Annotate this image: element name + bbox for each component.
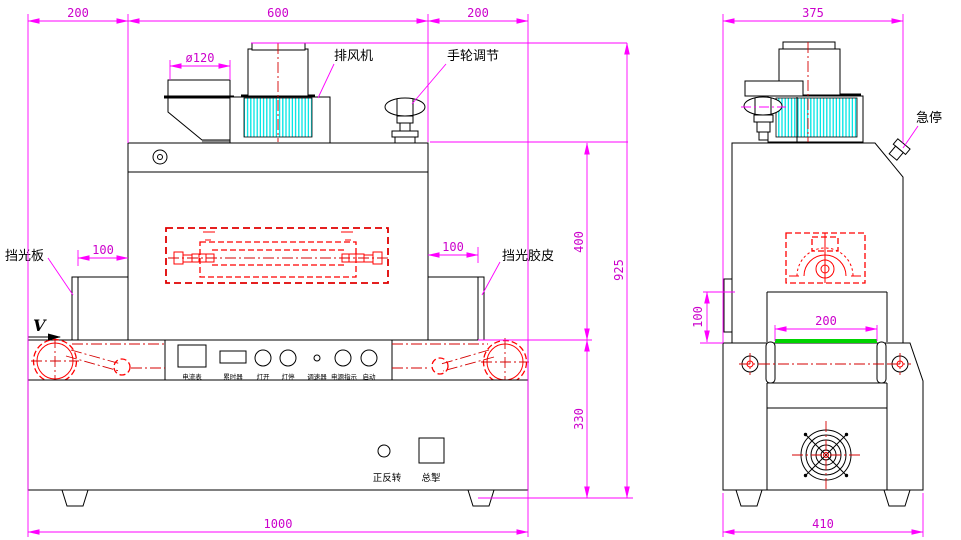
conveyor-belt-front xyxy=(28,337,529,386)
lamp-off-button[interactable] xyxy=(280,350,296,366)
foot xyxy=(884,490,910,506)
base-cabinet-front: 正反转 总掣 xyxy=(28,380,528,506)
hour-meter xyxy=(220,351,246,363)
dim-shield-inset-right: 100 xyxy=(442,240,464,254)
dim-duct-diameter: ø120 xyxy=(186,51,215,65)
lamp-on-button[interactable] xyxy=(255,350,271,366)
dim-belt-width: 200 xyxy=(815,314,837,328)
oven-body-side xyxy=(724,139,910,343)
dim-base-height: 330 xyxy=(572,408,586,430)
dim-base-depth: 410 xyxy=(812,517,834,531)
foot xyxy=(736,490,762,506)
dim-opening-height: 100 xyxy=(691,306,705,328)
exhaust-fan xyxy=(230,43,330,143)
dim-overhang-right: 200 xyxy=(467,6,489,20)
foot xyxy=(62,490,88,506)
power-indicator-lamp xyxy=(335,350,351,366)
dim-total-length: 1000 xyxy=(264,517,293,531)
dim-overhang-left: 200 xyxy=(67,6,89,20)
light-shield-left xyxy=(72,277,128,340)
exhaust-duct xyxy=(164,80,234,142)
dim-depth: 375 xyxy=(802,6,824,20)
start-button[interactable] xyxy=(361,350,377,366)
light-shield-plate-label: 挡光板 xyxy=(5,249,44,264)
engineering-drawing-canvas: 电流表 累时器 灯开 灯停 调速器 电源指示 启动 正反转 总掣 排风机 手轮调… xyxy=(0,0,961,540)
roller-end xyxy=(877,342,886,383)
side-callouts: 急停 xyxy=(903,110,942,148)
handwheel xyxy=(385,98,425,143)
dim-shield-inset-left: 100 xyxy=(92,243,114,257)
main-switch[interactable] xyxy=(419,438,444,463)
emergency-stop-label: 急停 xyxy=(916,110,942,126)
fwd-rev-switch[interactable] xyxy=(378,445,390,457)
ammeter-meter xyxy=(178,345,206,367)
light-shield-right xyxy=(428,277,484,340)
dim-total-height: 925 xyxy=(612,259,626,281)
belt-direction-label: V xyxy=(33,316,47,335)
dim-body-height: 400 xyxy=(572,231,586,253)
exhaust-fan-label: 排风机 xyxy=(334,49,373,64)
main-switch-label: 总掣 xyxy=(421,472,440,484)
roller-end xyxy=(766,342,775,383)
base-cabinet-side xyxy=(723,341,923,506)
fwd-rev-label: 正反转 xyxy=(373,472,402,484)
speed-knob[interactable] xyxy=(314,355,320,361)
uv-machine-drawing: 电流表 累时器 灯开 灯停 调速器 电源指示 启动 正反转 总掣 排风机 手轮调… xyxy=(0,0,961,540)
front-view: 电流表 累时器 灯开 灯停 调速器 电源指示 启动 正反转 总掣 排风机 手轮调… xyxy=(5,6,633,537)
dim-body-width: 600 xyxy=(267,6,289,20)
side-view: 急停 375 100 200 410 xyxy=(691,6,942,537)
handwheel-label: 手轮调节 xyxy=(447,49,499,64)
